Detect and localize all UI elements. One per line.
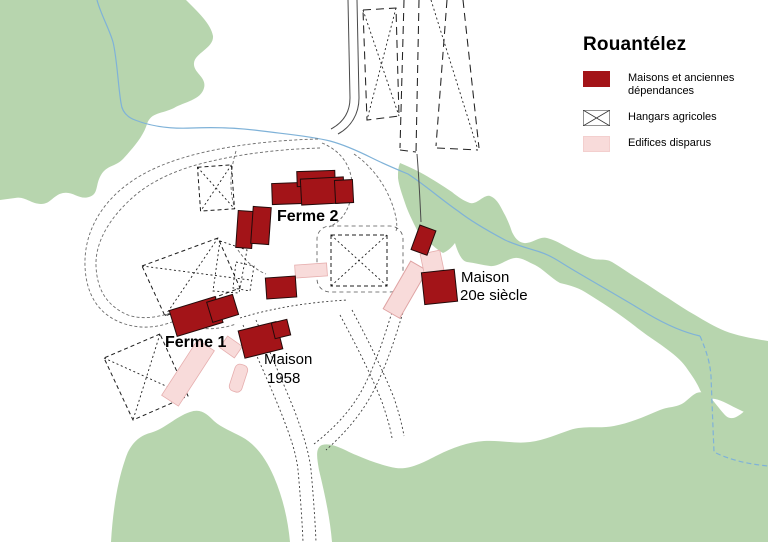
label-maison20e-line1: Maison [461, 269, 509, 286]
lane-from-maison20e-b [326, 296, 408, 450]
building-ferme2-barn [236, 206, 272, 248]
field-strip-3-end [437, 148, 478, 150]
lane-southeast-a [352, 310, 404, 436]
legend-item-disparus: Edifices disparus [583, 136, 711, 152]
disappeared-building-maison20e-long [383, 261, 427, 318]
vegetation-northwest [0, 0, 213, 204]
legend-swatch-disparus [583, 136, 610, 152]
label-maison20e-line2: 20e siècle [460, 287, 528, 304]
label-ferme2: Ferme 2 [277, 208, 338, 225]
legend-swatch-hangars [583, 110, 610, 126]
field-strip-3-diagonal [431, 0, 477, 147]
building-ferme2-cluster [272, 170, 354, 205]
field-strip-1-diagonal-a [363, 10, 399, 116]
legend-swatch-maisons [583, 71, 610, 87]
field-strip-2-east [416, 0, 419, 153]
hangar-north [198, 165, 235, 211]
field-track-west-edge [331, 0, 350, 129]
disappeared-building-oblong [228, 363, 249, 394]
legend-label-hangars: Hangars agricoles [628, 110, 717, 124]
vegetation-southwest [111, 411, 290, 542]
label-maison1958-line2: 1958 [267, 370, 300, 387]
building-ferme1-cluster [169, 294, 238, 336]
lane-southeast-b [340, 315, 392, 438]
field-strip-2-end [400, 150, 416, 152]
disappeared-building-ferme2 [295, 263, 328, 278]
legend-title: Rouantélez [583, 34, 758, 56]
legend-label-maisons: Maisons et anciennes dépendances [628, 71, 734, 98]
site-map: Ferme 2 Ferme 1 Maison 1958 Maison 20e s… [0, 0, 768, 542]
label-maison1958-line1: Maison [264, 351, 312, 368]
legend-label-disparus: Edifices disparus [628, 136, 711, 150]
lane-ferme1-to-east [240, 300, 348, 318]
yard-boundary-west [231, 151, 236, 209]
legend-item-hangars: Hangars agricoles [583, 110, 717, 126]
field-strip-3-east [463, 0, 479, 148]
building-small-center [265, 276, 296, 299]
vegetation-south [317, 392, 768, 542]
field-strip-3-west [436, 0, 447, 146]
hangar-east [317, 226, 403, 292]
building-maison20e-annex [411, 225, 436, 255]
label-ferme1: Ferme 1 [165, 334, 226, 351]
yard-boundary-east-2 [354, 154, 397, 231]
yard-boundary-center [238, 250, 266, 274]
legend: Rouantélez Maisons et anciennes dépendan… [583, 34, 758, 56]
field-strip-2-west [400, 0, 404, 148]
hatched-swatch-icon [583, 110, 610, 126]
lane-from-maison20e-a [314, 300, 396, 444]
legend-item-maisons: Maisons et anciennes dépendances [583, 71, 734, 98]
building-maison-20e-siecle [421, 269, 457, 304]
